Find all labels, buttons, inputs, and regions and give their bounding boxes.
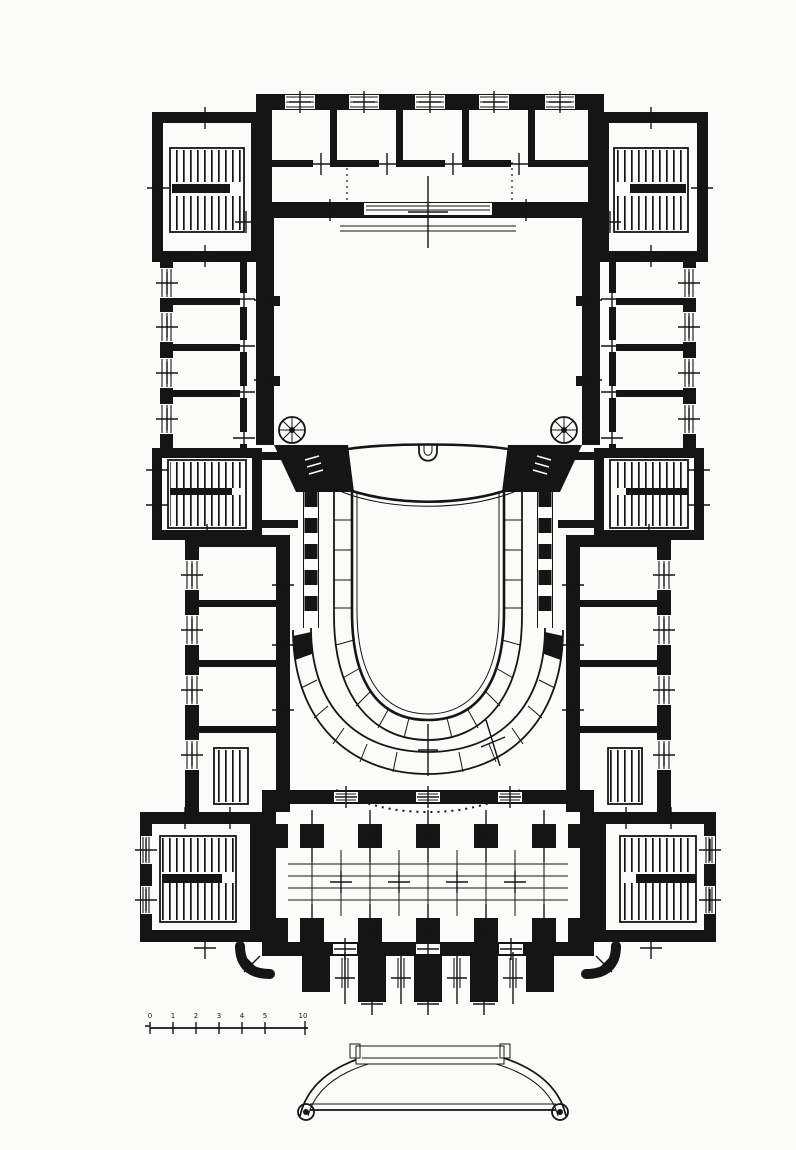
pavilion-middle-right (558, 448, 704, 540)
pavilion-bottom-right (594, 812, 716, 942)
staircase-right-lower (608, 748, 642, 804)
staircase-middle-left (168, 460, 246, 528)
scale-label: 0 (148, 1012, 152, 1020)
pavilion-bottom-left (140, 812, 262, 942)
staircase-bottom-left (160, 836, 236, 922)
staircase-top-right (614, 148, 688, 232)
scale-bar: 0 1 2 3 4 5 10 (145, 1012, 308, 1035)
spiral-stair-left (279, 417, 305, 443)
scale-label: 4 (240, 1012, 245, 1020)
auditorium-horseshoe (293, 492, 563, 812)
carriage-ramp (298, 1044, 568, 1120)
staircase-middle-right (610, 460, 688, 528)
north-range (256, 94, 604, 231)
proscenium-apron (274, 445, 582, 507)
theater-floor-plan: 0 1 2 3 4 5 10 (0, 0, 796, 1150)
ramp-platform (350, 1044, 510, 1064)
right-wing-lower (566, 535, 671, 812)
pavilion-top-right (598, 112, 708, 262)
scanned-floor-plan-page: 0 1 2 3 4 5 10 (0, 0, 796, 1150)
scale-label: 10 (299, 1012, 308, 1020)
scale-label: 3 (217, 1012, 221, 1020)
left-wing-lower (185, 535, 290, 812)
pavilion-top-left (152, 112, 262, 262)
entrance-foyer (262, 790, 594, 956)
pavilion-middle-left (152, 448, 298, 540)
scale-label: 2 (194, 1012, 198, 1020)
spiral-stair-right (551, 417, 577, 443)
staircase-top-left (170, 148, 244, 232)
prompter-box (419, 445, 437, 461)
staircase-bottom-right (620, 836, 696, 922)
staircase-left-lower (214, 748, 248, 804)
scale-label: 5 (263, 1012, 267, 1020)
scale-label: 1 (171, 1012, 175, 1020)
